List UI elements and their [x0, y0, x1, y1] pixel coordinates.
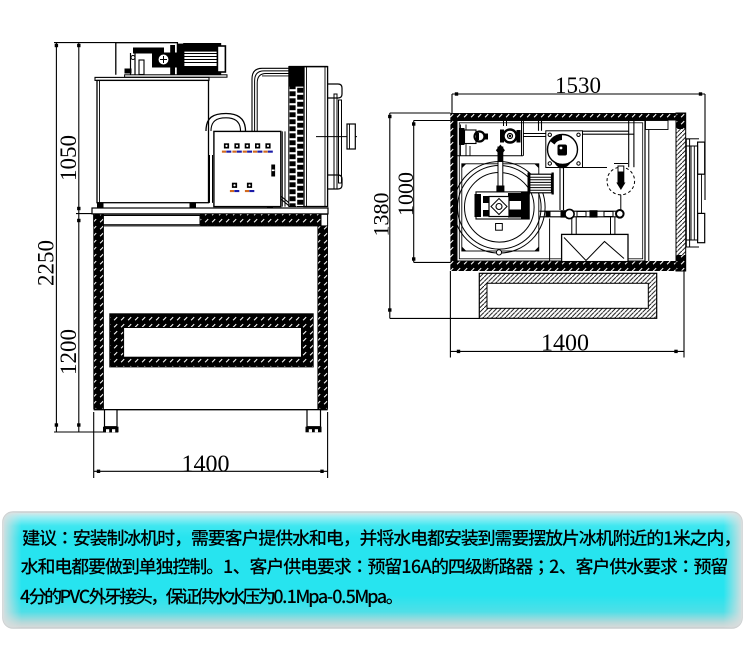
svg-text:1050: 1050	[56, 135, 81, 181]
svg-text:2250: 2250	[34, 240, 59, 286]
svg-text:1200: 1200	[56, 329, 81, 375]
svg-text:1400: 1400	[541, 331, 589, 357]
svg-text:1530: 1530	[555, 73, 601, 98]
svg-text:1000: 1000	[393, 172, 418, 216]
svg-text:1400: 1400	[182, 452, 230, 478]
svg-text:1380: 1380	[369, 193, 394, 237]
